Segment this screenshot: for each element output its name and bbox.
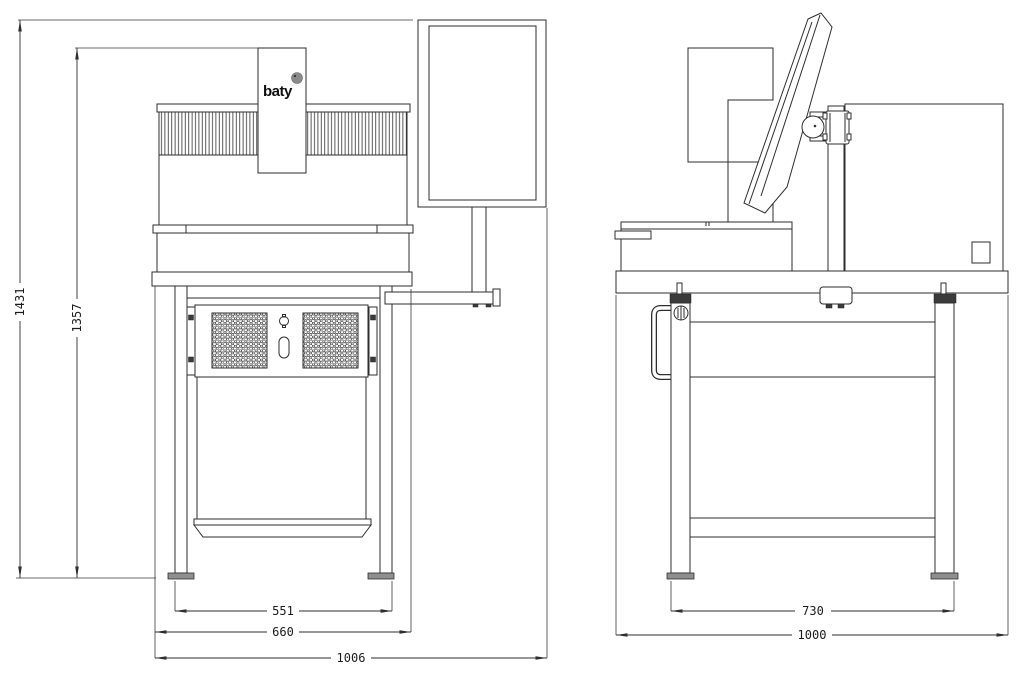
rear-enclosure bbox=[845, 104, 1003, 271]
monitor-arm bbox=[385, 292, 494, 304]
z-column-housing bbox=[258, 48, 306, 173]
foot-pad-left-front bbox=[168, 573, 194, 579]
clamp-tab bbox=[823, 134, 827, 140]
tilt-hinge bbox=[802, 116, 824, 138]
dim-label-column-height: 1357 bbox=[70, 299, 84, 337]
bench-leg-right-side bbox=[935, 303, 954, 573]
vent-mesh-left bbox=[212, 313, 267, 368]
brand-logo-dot-highlight bbox=[294, 75, 296, 77]
dim-label-overall-height: 1431 bbox=[13, 283, 27, 321]
bench-leg-left-front bbox=[175, 286, 187, 573]
arm-screw bbox=[473, 304, 478, 307]
svg-text:1431: 1431 bbox=[13, 288, 27, 317]
machine-dimension-drawing: baty bbox=[0, 0, 1024, 683]
dim-label-overall-width: 1006 bbox=[337, 651, 366, 665]
clamp-tab bbox=[823, 113, 827, 119]
pole-foot-bolt bbox=[838, 304, 844, 308]
monitor-pole-front bbox=[472, 207, 486, 292]
dim-label-bench-width: 660 bbox=[272, 625, 294, 639]
vent-mesh-right bbox=[303, 313, 358, 368]
clamp-tab bbox=[847, 113, 851, 119]
svg-text:1357: 1357 bbox=[70, 304, 84, 333]
rack-screw bbox=[371, 357, 376, 362]
bench-leg-left-side bbox=[671, 303, 690, 573]
left-clamp-tab bbox=[153, 225, 186, 233]
right-clamp-tab bbox=[377, 225, 413, 233]
technical-drawing-page: baty bbox=[0, 0, 1024, 683]
z-column: baty bbox=[258, 48, 306, 173]
monitor-arm-endcap bbox=[493, 289, 500, 306]
foot-pad-right-front bbox=[368, 573, 394, 579]
machine-base bbox=[157, 233, 409, 272]
brand-logo-dot bbox=[292, 73, 303, 84]
shelf-tray bbox=[194, 525, 371, 537]
adjuster-stem-left bbox=[677, 283, 682, 294]
vesa-clamp bbox=[826, 111, 849, 144]
bench-leg-right-front bbox=[380, 286, 392, 573]
dim-label-leg-width: 551 bbox=[272, 604, 294, 618]
rack-unit bbox=[187, 305, 377, 377]
rack-screw bbox=[189, 315, 194, 320]
stage-front-ledge bbox=[615, 231, 651, 239]
bench-top-side bbox=[616, 271, 1008, 293]
hinge-pin bbox=[814, 125, 817, 128]
pole-foot bbox=[820, 287, 852, 304]
clamp-tab bbox=[847, 134, 851, 140]
foot-pad-right-side bbox=[931, 573, 958, 579]
brand-logo-text: baty bbox=[263, 83, 293, 100]
bench-top-front bbox=[152, 272, 412, 286]
leveling-adjuster-right bbox=[934, 294, 956, 303]
leveling-adjuster-left bbox=[670, 294, 691, 303]
monitor-frame bbox=[418, 20, 546, 207]
shelf-edge bbox=[194, 519, 371, 525]
pole-foot-bolt bbox=[826, 304, 832, 308]
rack-screw bbox=[189, 357, 194, 362]
adjuster-stem-right bbox=[941, 283, 946, 294]
foot-pad-left-side bbox=[667, 573, 694, 579]
arm-screw bbox=[486, 304, 491, 307]
dim-label-overall-depth: 1000 bbox=[798, 628, 827, 642]
rack-screw bbox=[371, 315, 376, 320]
dim-label-leg-depth: 730 bbox=[802, 604, 824, 618]
